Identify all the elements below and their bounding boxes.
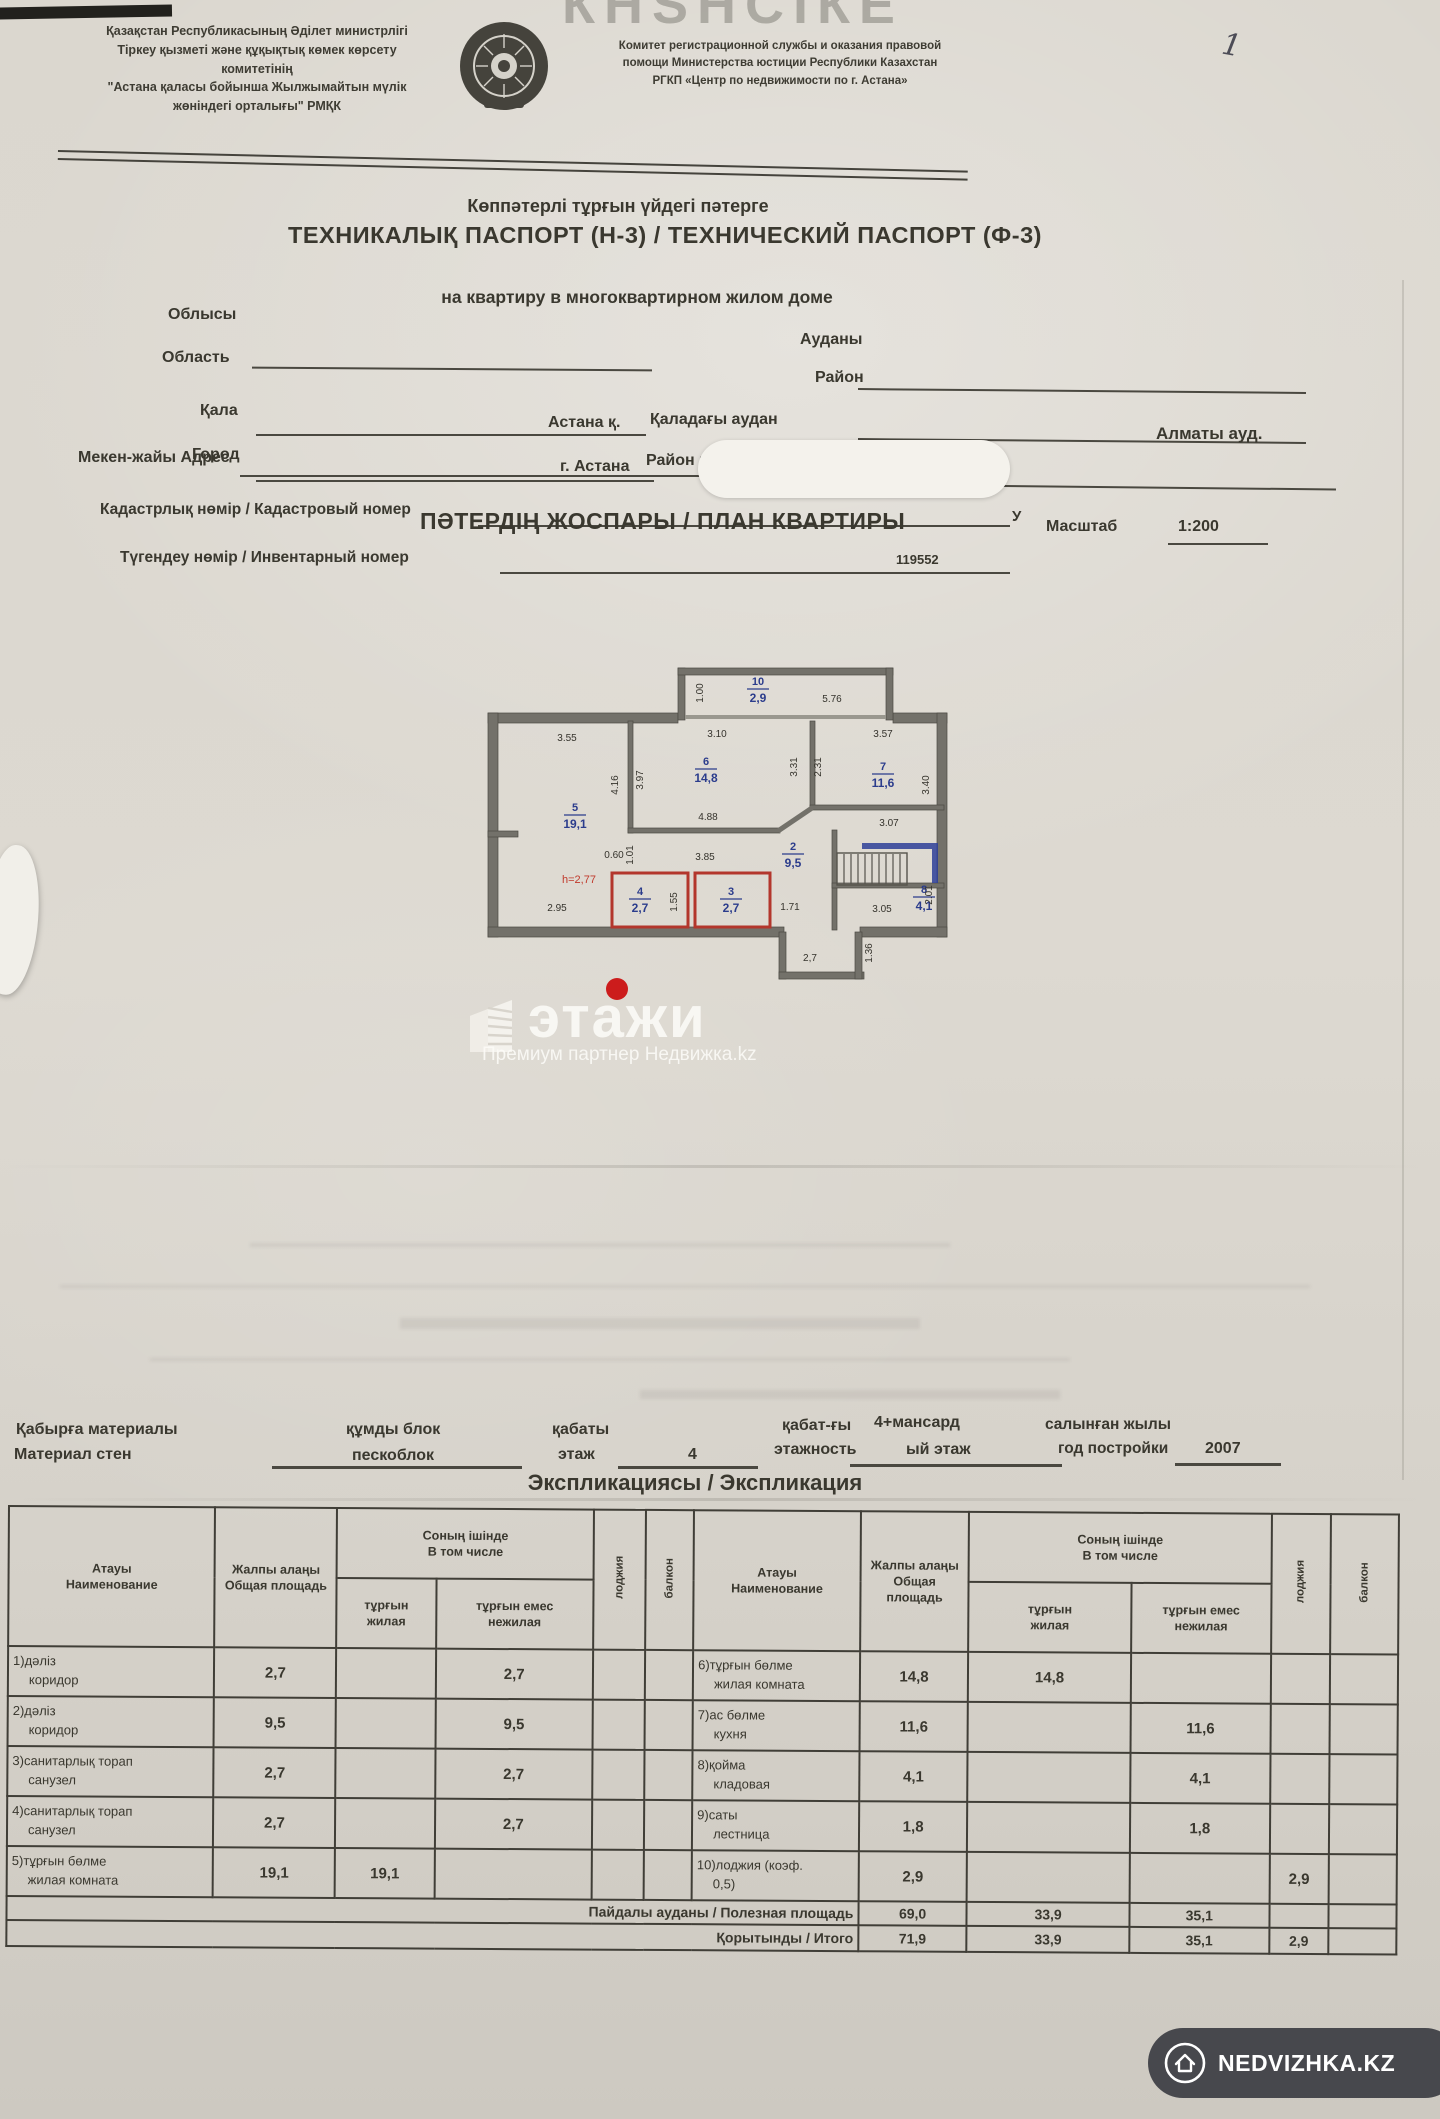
table-row: 4)санитарлық торапсанузел2,72,79)сатылес… xyxy=(7,1796,1397,1854)
floor-value: 4 xyxy=(688,1446,697,1464)
dimension-label: 1.36 xyxy=(864,943,875,963)
useful-area-nonliving: 35,1 xyxy=(1129,1903,1269,1928)
room-loggia-cell xyxy=(1270,1654,1330,1704)
dimension-label: 3.31 xyxy=(789,757,800,777)
room-nonliving-cell xyxy=(434,1849,592,1900)
room-total-cell: 11,6 xyxy=(859,1701,968,1752)
header-left-line: "Астана қаласы бойынша Жылжымайтын мүлік xyxy=(52,78,462,97)
room-nonliving-cell: 9,5 xyxy=(435,1699,593,1750)
field-label-address: Мекен-жайы Адрес xyxy=(78,449,230,467)
room-total-cell: 2,9 xyxy=(858,1851,967,1902)
table-row: 5)тұрғын бөлмежилая комната19,119,110)ло… xyxy=(7,1846,1397,1904)
col-header-living-left: тұрғынжилая xyxy=(337,1578,437,1649)
field-label-cadastre: Кадастрлық нөмір / Кадастровый номер xyxy=(100,501,411,519)
dimension-label: 3.55 xyxy=(557,733,577,744)
room-living-cell xyxy=(968,1752,1131,1803)
wall-material-value-kz: құмды блок xyxy=(346,1421,440,1439)
dimension-label: 3.57 xyxy=(873,729,893,740)
header-right-line: помощи Министерства юстиции Республики К… xyxy=(575,55,985,72)
room-number-label: 6 xyxy=(703,756,709,768)
room-nonliving-cell xyxy=(1130,1853,1270,1904)
room-loggia-cell xyxy=(1270,1704,1330,1754)
room-total-cell: 9,5 xyxy=(214,1697,336,1748)
col-header-balcony-left: балкон xyxy=(645,1510,694,1650)
room-living-cell xyxy=(336,1748,435,1799)
document-title: ТЕХНИКАЛЫҚ ПАСПОРТ (Н-3) / ТЕХНИЧЕСКИЙ П… xyxy=(165,222,1165,249)
dimension-label: 3.40 xyxy=(921,775,932,795)
col-header-total-right: Жалпы алаңыОбщая площадь xyxy=(860,1511,969,1652)
room-loggia-cell xyxy=(1270,1804,1330,1854)
storeys-label-kz: қабат-ғы xyxy=(782,1417,851,1435)
field-value-qala-kz: Астана қ. xyxy=(548,414,620,432)
scale-value: 1:200 xyxy=(1178,518,1219,536)
room-balcony-cell xyxy=(644,1750,692,1800)
room-nonliving-cell: 2,7 xyxy=(435,1749,593,1800)
scale-line xyxy=(1168,543,1268,545)
dimension-label: 4.16 xyxy=(610,775,621,795)
field-label-inventory: Түгендеу нөмір / Инвентарный номер xyxy=(120,549,409,567)
room-balcony-cell xyxy=(1330,1654,1398,1704)
room-nonliving-cell: 4,1 xyxy=(1130,1753,1270,1804)
header-left-line: Қазақстан Республикасының Әділет министр… xyxy=(52,22,462,41)
room-area-label: 2,9 xyxy=(750,691,767,705)
room-total-cell: 4,1 xyxy=(859,1751,968,1802)
plan-title: ПӘТЕРДІҢ ЖОСПАРЫ / ПЛАН КВАРТИРЫ xyxy=(420,508,905,535)
dimension-label: 3.05 xyxy=(872,904,892,915)
plan-window-line xyxy=(685,715,886,719)
bleed-through xyxy=(60,1285,1310,1288)
storeys-line xyxy=(850,1464,1062,1467)
useful-area-total: 69,0 xyxy=(858,1901,967,1926)
room-name-cell: 2)дәлізкоридор xyxy=(8,1696,215,1747)
total-label: Қорытынды / Итого xyxy=(6,1920,858,1951)
dimension-label: 1.55 xyxy=(669,892,680,912)
year-built-label-kz: салынған жылы xyxy=(1045,1416,1171,1434)
wall-material-label-kz: Қабырға материалы xyxy=(16,1421,178,1439)
dimension-label: 0.60 xyxy=(604,850,624,861)
room-total-cell: 19,1 xyxy=(213,1847,335,1898)
paper-artifact xyxy=(0,843,46,998)
field-label-oblys-kz: Облысы xyxy=(168,306,236,324)
total-balcony xyxy=(1328,1928,1396,1954)
dimension-label: 3.97 xyxy=(635,770,646,790)
header-left-line: комитетінің xyxy=(52,60,462,79)
field-value-city-district: Алматы ауд. xyxy=(1156,424,1262,444)
storeys-label-ru: этажность xyxy=(774,1441,857,1459)
field-label-audany-ru: Район xyxy=(815,369,864,387)
field-line-audany xyxy=(858,388,1306,394)
room-balcony-cell xyxy=(644,1800,692,1850)
dimension-label: 2,7 xyxy=(803,953,817,964)
table-row: 1)дәлізкоридор2,72,76)тұрғын бөлмежилая … xyxy=(8,1646,1398,1704)
paper-crease xyxy=(0,1165,1440,1168)
bleed-through xyxy=(150,1358,1070,1361)
room-nonliving-cell: 2,7 xyxy=(435,1649,593,1700)
useful-area-balcony xyxy=(1329,1904,1397,1928)
bleed-through xyxy=(400,1318,920,1329)
field-line-qala xyxy=(256,434,646,436)
room-area-label: 2,7 xyxy=(723,901,740,915)
floor-line xyxy=(618,1466,758,1469)
total-nonliving: 35,1 xyxy=(1129,1927,1269,1954)
room-total-cell: 2,7 xyxy=(214,1647,336,1698)
header-left-kazakh: Қазақстан Республикасының Әділет министр… xyxy=(52,22,462,116)
floor-plan: h=2,77 102,9519,1614,8711,629,542,732,78… xyxy=(480,655,960,1010)
bleed-through xyxy=(250,1243,950,1247)
kazakhstan-emblem-icon xyxy=(452,18,556,123)
storeys-value-line1: 4+мансард xyxy=(874,1414,960,1432)
floor-label-kz: қабаты xyxy=(552,1421,609,1439)
room-nonliving-cell: 2,7 xyxy=(434,1799,592,1850)
col-header-loggia-right: лоджия xyxy=(1271,1514,1331,1654)
field-line-gorod xyxy=(256,480,654,482)
explication-table: АтауыНаименование Жалпы алаңыОбщая площа… xyxy=(5,1505,1400,1955)
room-total-cell: 14,8 xyxy=(860,1651,969,1702)
room-living-cell xyxy=(967,1852,1130,1903)
room-loggia-cell: 2,9 xyxy=(1269,1854,1329,1904)
field-line-inventory xyxy=(500,572,1010,574)
scanned-technical-passport: КНЅНСІКЕ 1 Қазақстан Республикасының Әді… xyxy=(0,0,1440,2119)
nedvizhka-badge-label: NEDVIZHKA.KZ xyxy=(1218,2050,1395,2077)
col-header-balcony-right: балкон xyxy=(1330,1514,1399,1654)
scan-artifact-bar xyxy=(0,4,172,19)
room-total-cell: 2,7 xyxy=(214,1747,336,1798)
room-name-cell: 6)тұрғын бөлмежилая комната xyxy=(693,1650,860,1701)
plan-red-rooms xyxy=(612,873,770,927)
room-number-label: 10 xyxy=(752,676,764,688)
room-balcony-cell xyxy=(1330,1704,1398,1754)
total-loggia: 2,9 xyxy=(1269,1928,1329,1954)
field-label-oblys-ru: Область xyxy=(162,349,230,367)
useful-area-living: 33,9 xyxy=(967,1902,1130,1927)
dimension-label: 1.71 xyxy=(780,902,800,913)
room-total-cell: 1,8 xyxy=(859,1801,968,1852)
etazhi-brand-text: этажи xyxy=(528,984,707,1051)
col-header-loggia-left: лоджия xyxy=(593,1510,646,1650)
header-right-line: Комитет регистрационной службы и оказани… xyxy=(575,38,985,55)
total-living: 33,9 xyxy=(967,1926,1130,1953)
top-watermark: КНЅНСІКЕ xyxy=(562,0,904,36)
room-name-cell: 5)тұрғын бөлмежилая комната xyxy=(7,1846,214,1897)
field-label-qala-kz: Қала xyxy=(200,402,238,420)
house-icon xyxy=(1164,2042,1206,2084)
room-living-cell: 14,8 xyxy=(968,1652,1131,1703)
room-number-label: 7 xyxy=(880,761,886,773)
dimension-label: 2.31 xyxy=(813,757,824,777)
document-subtitle-kz: Көппәтерлі тұрғын үйдегі пәтерге xyxy=(268,196,968,217)
redaction-blob xyxy=(698,440,1010,498)
room-loggia-cell xyxy=(592,1750,644,1800)
dimension-label: 2.95 xyxy=(547,903,567,914)
room-name-cell: 10)лоджия (коэф.0,5) xyxy=(692,1850,859,1901)
dimension-label: 1.00 xyxy=(695,683,706,703)
document-subtitle-ru: на квартиру в многоквартирном жилом доме xyxy=(287,287,987,308)
dimension-label: 5.76 xyxy=(822,694,842,705)
room-number-label: 3 xyxy=(728,886,734,898)
year-built-value: 2007 xyxy=(1205,1440,1241,1458)
room-balcony-cell xyxy=(1329,1854,1397,1904)
plan-height-note: h=2,77 xyxy=(562,874,596,886)
room-loggia-cell xyxy=(593,1700,645,1750)
col-header-nonliving-left: тұрғын емеснежилая xyxy=(436,1579,594,1650)
header-right-line: РГКП «Центр по недвижимости по г. Астана… xyxy=(575,73,985,90)
col-header-living-right: тұрғынжилая xyxy=(968,1582,1131,1653)
col-header-incl-right: Соның ішіндеВ том числе xyxy=(969,1512,1272,1584)
field-line-oblys xyxy=(252,367,652,372)
col-header-incl-left: Соның ішіндеВ том числе xyxy=(337,1508,594,1580)
useful-area-loggia xyxy=(1269,1904,1329,1928)
field-label-city-district-kz: Қаладағы аудан xyxy=(650,411,778,429)
col-header-name-left: АтауыНаименование xyxy=(8,1506,215,1647)
year-built-line xyxy=(1175,1463,1281,1466)
header-left-line: жөніндегі орталығы" РМҚК xyxy=(52,97,462,116)
room-living-cell xyxy=(335,1798,434,1849)
room-balcony-cell xyxy=(644,1850,692,1900)
plan-walls xyxy=(488,668,947,979)
room-area-label: 2,7 xyxy=(632,901,649,915)
paper-crease xyxy=(0,1498,1440,1501)
room-name-cell: 1)дәлізкоридор xyxy=(8,1646,215,1697)
dimension-label: 4.88 xyxy=(698,812,718,823)
table-row: 2)дәлізкоридор9,59,57)ас бөлмекухня11,61… xyxy=(8,1696,1398,1754)
field-value-qala-ru: г. Астана xyxy=(560,458,630,476)
plan-stairs xyxy=(837,853,907,885)
room-number-label: 2 xyxy=(790,841,796,853)
room-number-label: 4 xyxy=(637,886,644,898)
dimension-label: 3.07 xyxy=(879,818,899,829)
room-living-cell xyxy=(336,1698,435,1749)
room-loggia-cell xyxy=(592,1850,644,1900)
etazhi-subtitle: Премиум партнер Недвижка.kz xyxy=(482,1044,782,1066)
header-right-russian: Комитет регистрационной службы и оказани… xyxy=(575,38,985,90)
room-living-cell xyxy=(968,1702,1131,1753)
col-header-nonliving-right: тұрғын емеснежилая xyxy=(1131,1583,1271,1654)
room-nonliving-cell xyxy=(1131,1653,1271,1704)
room-balcony-cell xyxy=(1329,1754,1397,1804)
room-area-label: 19,1 xyxy=(563,817,587,831)
header-left-line: Тіркеу қызметі және құқықтық көмек көрсе… xyxy=(52,41,462,60)
dimension-label: 3.85 xyxy=(695,852,715,863)
room-living-cell: 19,1 xyxy=(335,1848,434,1899)
room-loggia-cell xyxy=(592,1800,644,1850)
address-fragment: У xyxy=(1012,508,1021,525)
bleed-through xyxy=(640,1390,1060,1399)
dimension-label: 2.01 xyxy=(924,885,935,905)
room-living-cell xyxy=(967,1802,1130,1853)
nedvizhka-badge: NEDVIZHKA.KZ xyxy=(1148,2028,1440,2098)
room-name-cell: 9)сатылестница xyxy=(692,1800,859,1851)
explication-title: Экспликациясы / Экспликация xyxy=(0,1470,1390,1496)
room-area-label: 9,5 xyxy=(785,856,802,870)
room-total-cell: 2,7 xyxy=(213,1797,335,1848)
room-nonliving-cell: 11,6 xyxy=(1130,1703,1270,1754)
room-balcony-cell xyxy=(645,1650,693,1700)
room-living-cell xyxy=(336,1648,435,1699)
col-header-total-left: Жалпы алаңыОбщая площадь xyxy=(215,1507,338,1648)
year-built-label-ru: год постройки xyxy=(1058,1440,1168,1458)
room-number-label: 5 xyxy=(572,802,578,814)
room-name-cell: 8)қоймакладовая xyxy=(692,1750,859,1801)
room-nonliving-cell: 1,8 xyxy=(1130,1803,1270,1854)
dimension-label: 3.10 xyxy=(707,729,727,740)
total-total: 71,9 xyxy=(858,1925,967,1952)
floor-label-ru: этаж xyxy=(558,1446,595,1464)
col-header-name-right: АтауыНаименование xyxy=(693,1510,861,1651)
wall-material-value-ru: пескоблок xyxy=(352,1447,434,1465)
dimension-label: 1.01 xyxy=(625,845,636,865)
field-label-audany-kz: Ауданы xyxy=(800,331,862,349)
room-area-label: 11,6 xyxy=(872,776,895,790)
paper-fold-line xyxy=(1402,280,1404,1480)
room-name-cell: 4)санитарлық торапсанузел xyxy=(7,1796,214,1847)
page-number: 1 xyxy=(1219,27,1244,65)
room-loggia-cell xyxy=(1270,1754,1330,1804)
room-balcony-cell xyxy=(645,1700,693,1750)
room-name-cell: 7)ас бөлмекухня xyxy=(693,1700,860,1751)
wall-material-label-ru: Материал стен xyxy=(14,1446,132,1464)
wall-material-line xyxy=(272,1466,522,1469)
storeys-value-line2: ый этаж xyxy=(906,1441,971,1459)
room-balcony-cell xyxy=(1329,1804,1397,1854)
plan-diagonal-wall xyxy=(778,808,812,831)
table-row: 3)санитарлық торапсанузел2,72,78)қоймакл… xyxy=(7,1746,1397,1804)
room-loggia-cell xyxy=(593,1650,645,1700)
room-area-label: 14,8 xyxy=(694,771,718,785)
field-value-inventory: 119552 xyxy=(896,552,939,567)
header-divider xyxy=(58,150,968,181)
room-name-cell: 3)санитарлық торапсанузел xyxy=(7,1746,214,1797)
scale-label: Масштаб xyxy=(1046,518,1117,536)
